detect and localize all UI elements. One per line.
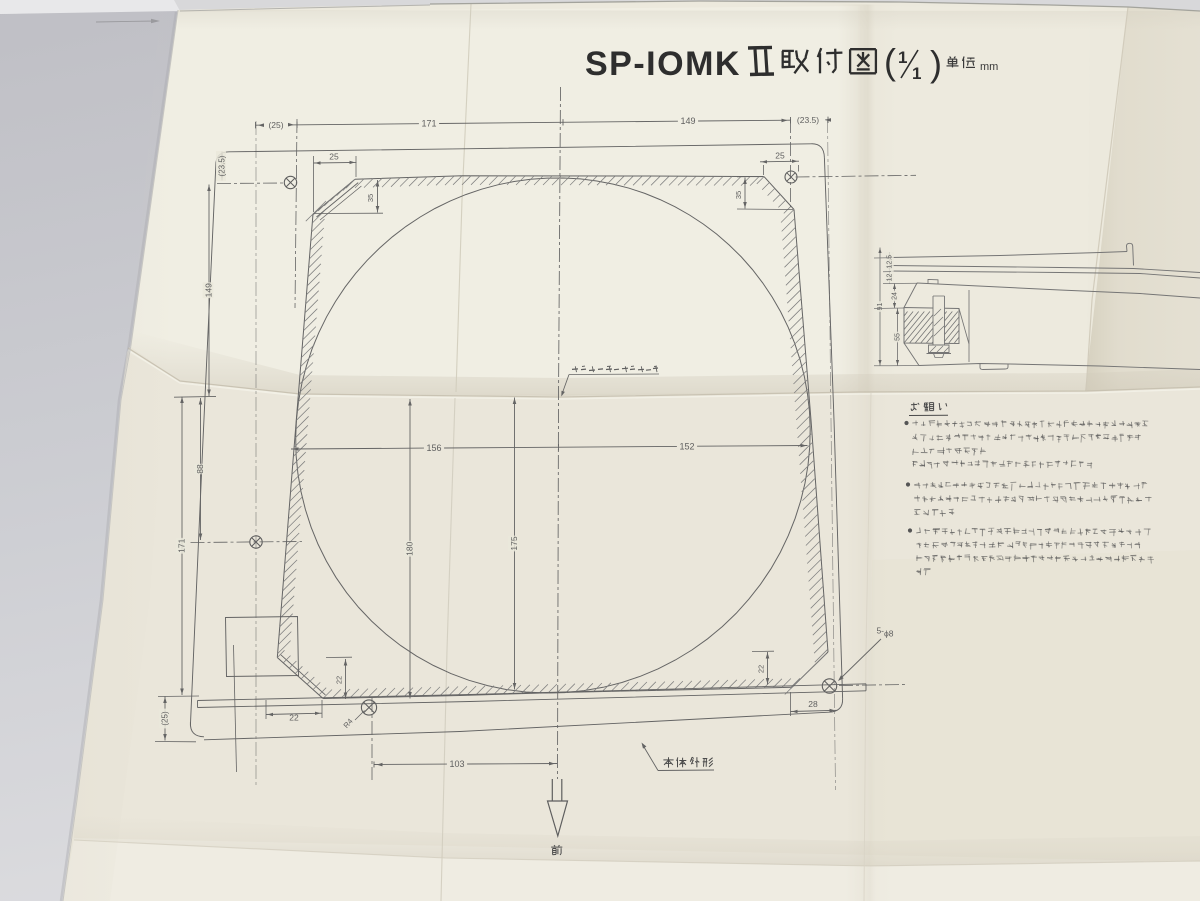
- svg-text:24: 24: [892, 292, 899, 300]
- svg-text:91: 91: [877, 303, 884, 311]
- svg-text:12: 12: [887, 274, 894, 282]
- svg-text:22: 22: [289, 713, 299, 723]
- svg-text:55: 55: [895, 333, 902, 341]
- svg-text:103: 103: [449, 759, 464, 769]
- svg-text:22: 22: [757, 665, 766, 673]
- svg-text:mm: mm: [980, 61, 998, 73]
- svg-text:22: 22: [335, 676, 344, 684]
- svg-text:1: 1: [912, 64, 921, 83]
- svg-text:152: 152: [679, 441, 694, 451]
- svg-text:12.5: 12.5: [887, 255, 894, 269]
- svg-text:(23.5): (23.5): [217, 155, 226, 176]
- svg-text:(23.5): (23.5): [797, 115, 819, 125]
- svg-text:SP-IOMK: SP-IOMK: [585, 45, 741, 83]
- svg-text:25: 25: [329, 152, 339, 162]
- svg-text:(25): (25): [160, 711, 169, 726]
- svg-text:35: 35: [366, 194, 375, 202]
- svg-text:171: 171: [177, 538, 187, 552]
- svg-text:5-: 5-: [876, 626, 884, 636]
- svg-text:171: 171: [421, 119, 436, 129]
- svg-text:(25): (25): [268, 120, 283, 130]
- svg-text:180: 180: [405, 541, 415, 555]
- svg-text:35: 35: [734, 191, 743, 199]
- svg-text:ϕ8: ϕ8: [884, 629, 894, 639]
- svg-text:149: 149: [680, 116, 695, 126]
- svg-text:1: 1: [898, 48, 907, 67]
- svg-text:149: 149: [204, 283, 214, 297]
- svg-text:28: 28: [808, 699, 818, 709]
- svg-text:156: 156: [426, 443, 441, 453]
- svg-text:175: 175: [509, 536, 519, 550]
- svg-text:25: 25: [775, 151, 785, 161]
- svg-text:88: 88: [195, 464, 205, 474]
- svg-text:(: (: [884, 41, 896, 82]
- svg-text:): ): [930, 43, 942, 84]
